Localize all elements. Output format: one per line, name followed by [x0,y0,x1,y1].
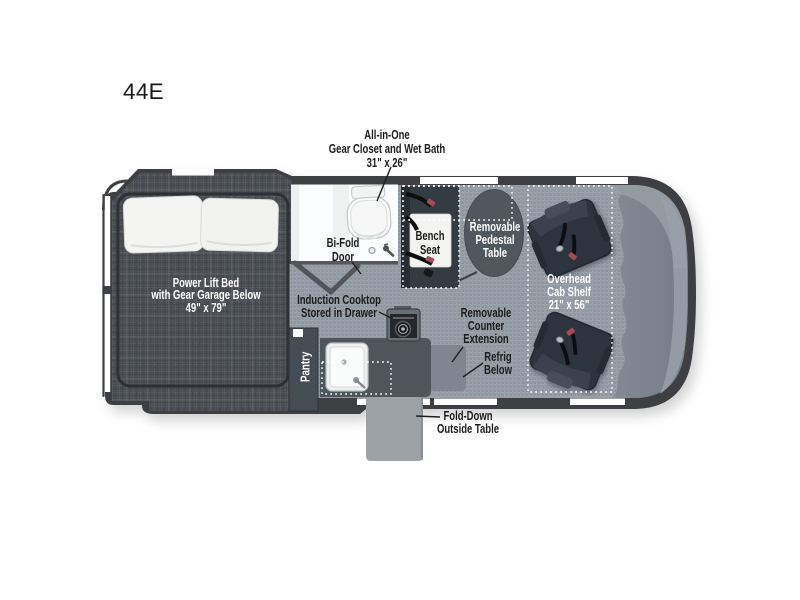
svg-text:Pantry: Pantry [299,351,312,382]
